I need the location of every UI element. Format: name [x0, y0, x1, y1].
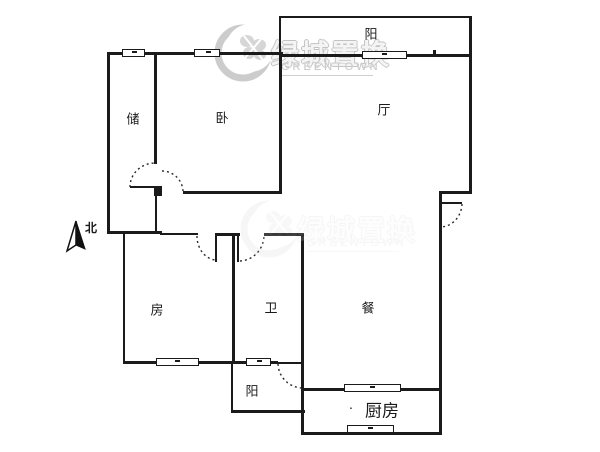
brand-text-en: GREENTOWN [281, 61, 373, 76]
room-label-balcony-top: 阳 [364, 28, 377, 41]
watermark-logo-faint: 绿城置换 GREENTOWN [26, 176, 600, 452]
greentown-moon-clover-icon [214, 24, 276, 89]
wall-segment [279, 16, 472, 18]
brand-text-en: GREENTOWN [307, 237, 399, 252]
greentown-moon-clover-icon [240, 200, 302, 265]
window-mullion [132, 51, 137, 53]
window-mullion [206, 51, 211, 53]
window-symbol [194, 49, 220, 57]
window-mullion [382, 53, 387, 55]
wall-segment [433, 50, 436, 55]
window-symbol [362, 51, 407, 59]
floorplan-canvas: 绿城置换 GREENTOWN 阳储卧厅房卫餐阳厨房·北 绿城置换 [0, 0, 600, 452]
wall-segment [469, 16, 472, 194]
room-label-living-room: 厅 [377, 104, 390, 117]
wall-segment [154, 54, 157, 164]
wall-segment [279, 54, 282, 194]
room-label-bedroom-main: 卧 [215, 112, 228, 125]
window-symbol [122, 49, 145, 57]
room-label-storage: 储 [126, 113, 139, 126]
wall-segment [279, 16, 281, 56]
